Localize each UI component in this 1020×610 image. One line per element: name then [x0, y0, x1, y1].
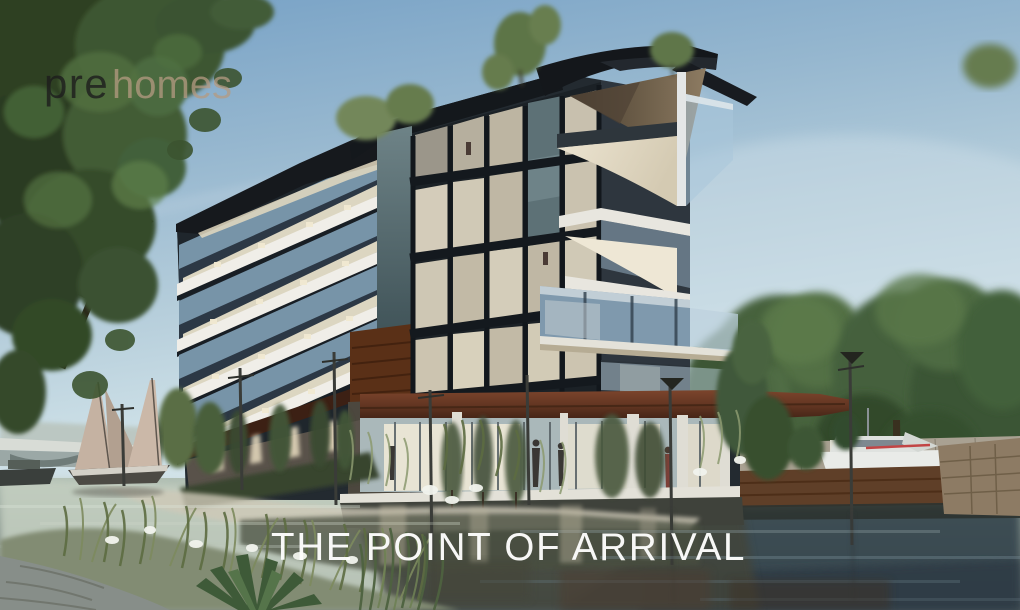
svg-text:homes: homes — [112, 63, 232, 107]
svg-text:THE POINT OF ARRIVAL: THE POINT OF ARRIVAL — [271, 526, 746, 569]
svg-text:pre: pre — [44, 60, 109, 107]
